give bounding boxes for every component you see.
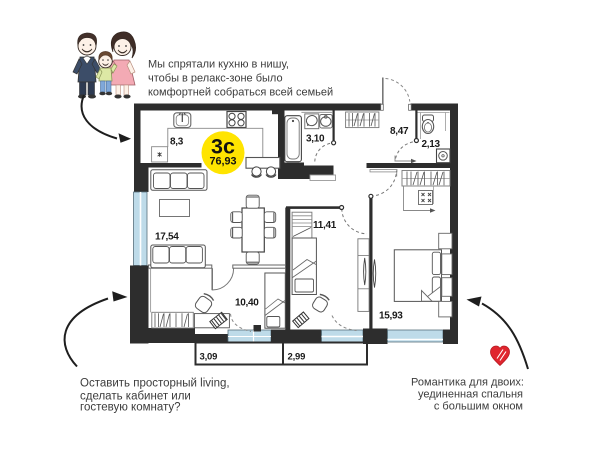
svg-text:10,40: 10,40: [235, 298, 259, 309]
svg-text:2,13: 2,13: [422, 139, 441, 150]
svg-text:3,10: 3,10: [306, 134, 325, 145]
svg-text:комфортней собраться всей семь: комфортней собраться всей семьей: [148, 87, 333, 99]
svg-text:Мы спрятали кухню в нишу,: Мы спрятали кухню в нишу,: [148, 59, 289, 71]
svg-text:15,93: 15,93: [379, 311, 403, 322]
svg-text:2,99: 2,99: [288, 352, 306, 363]
svg-text:11,41: 11,41: [313, 220, 337, 231]
svg-text:8,47: 8,47: [390, 126, 409, 137]
svg-text:Оставить просторный living,: Оставить просторный living,: [80, 378, 230, 390]
svg-text:3,09: 3,09: [200, 352, 218, 363]
svg-text:уединенная спальня: уединенная спальня: [418, 389, 523, 401]
svg-text:17,54: 17,54: [155, 232, 179, 243]
svg-text:с большим окном: с большим окном: [434, 401, 523, 413]
svg-text:Романтика для двоих:: Романтика для двоих:: [411, 377, 524, 389]
svg-text:гостевую комнату?: гостевую комнату?: [80, 402, 181, 414]
svg-text:8,3: 8,3: [170, 137, 184, 148]
svg-text:чтобы в релакс-зоне было: чтобы в релакс-зоне было: [148, 73, 283, 85]
svg-text:76,93: 76,93: [209, 156, 236, 168]
